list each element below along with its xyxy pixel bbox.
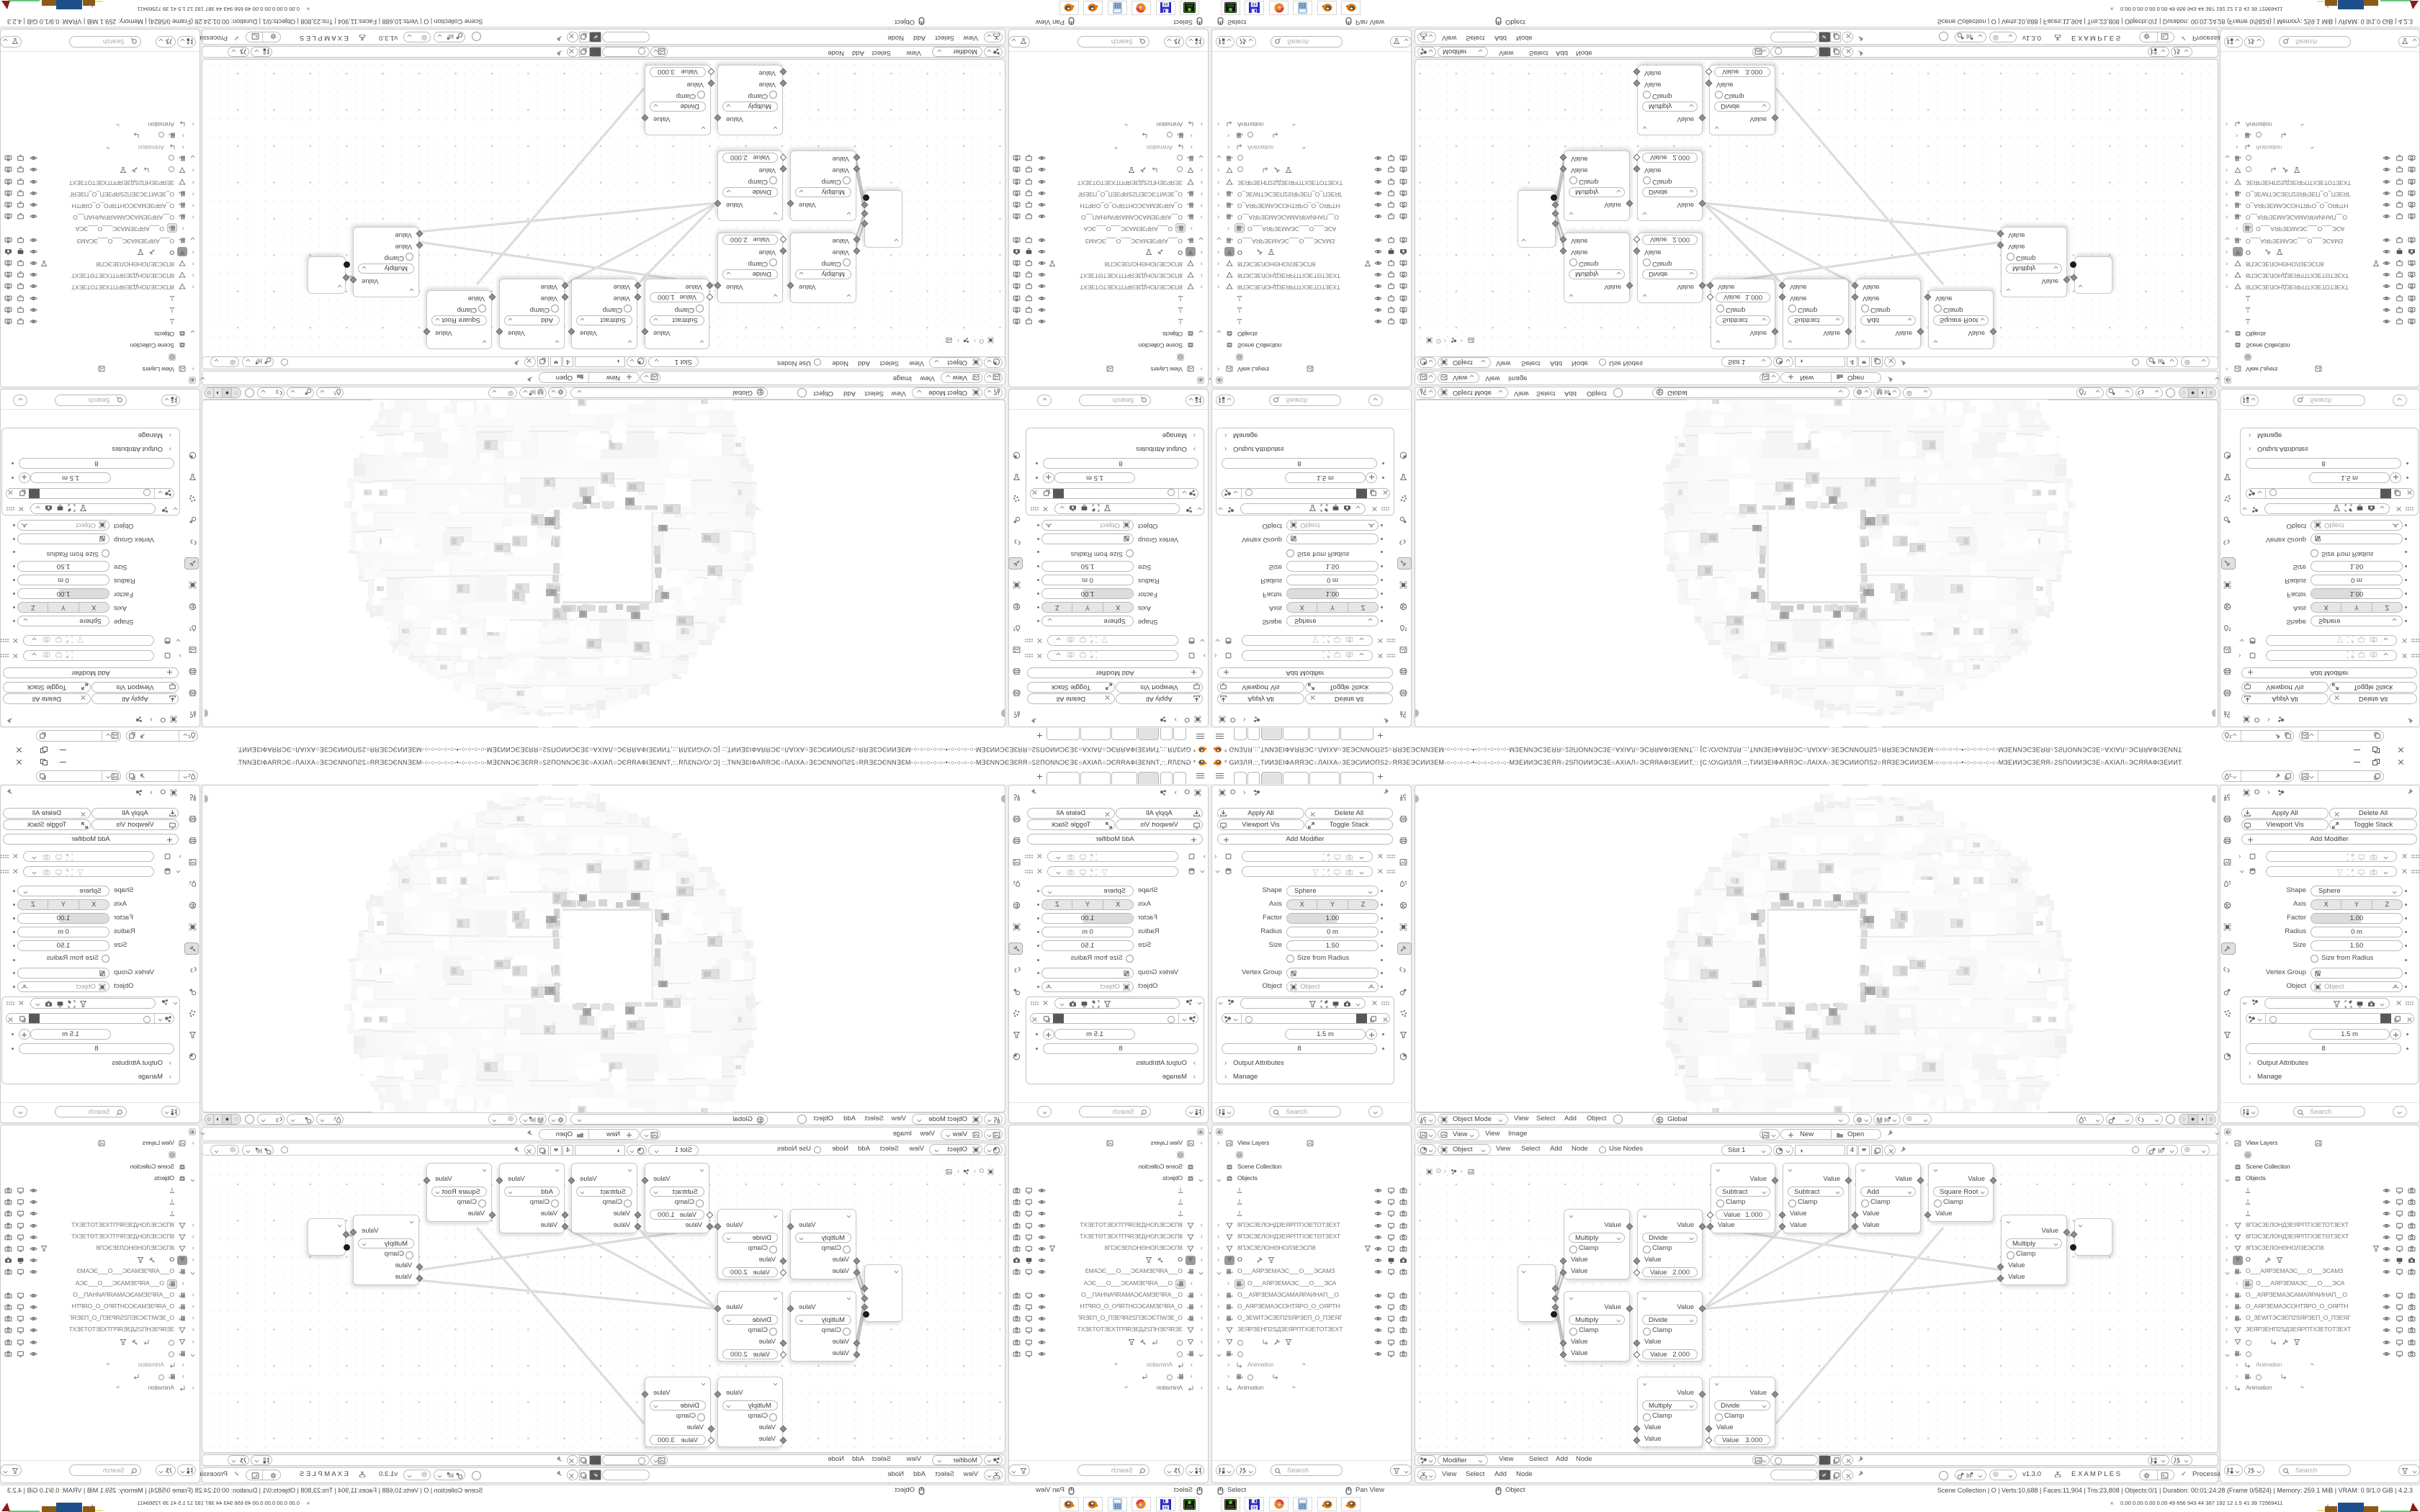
- svg-text:64: 64: [1164, 1506, 1168, 1510]
- svg-text:64: 64: [1164, 3, 1168, 6]
- svg-text:64: 64: [1252, 3, 1257, 6]
- svg-text:64: 64: [1252, 1506, 1257, 1510]
